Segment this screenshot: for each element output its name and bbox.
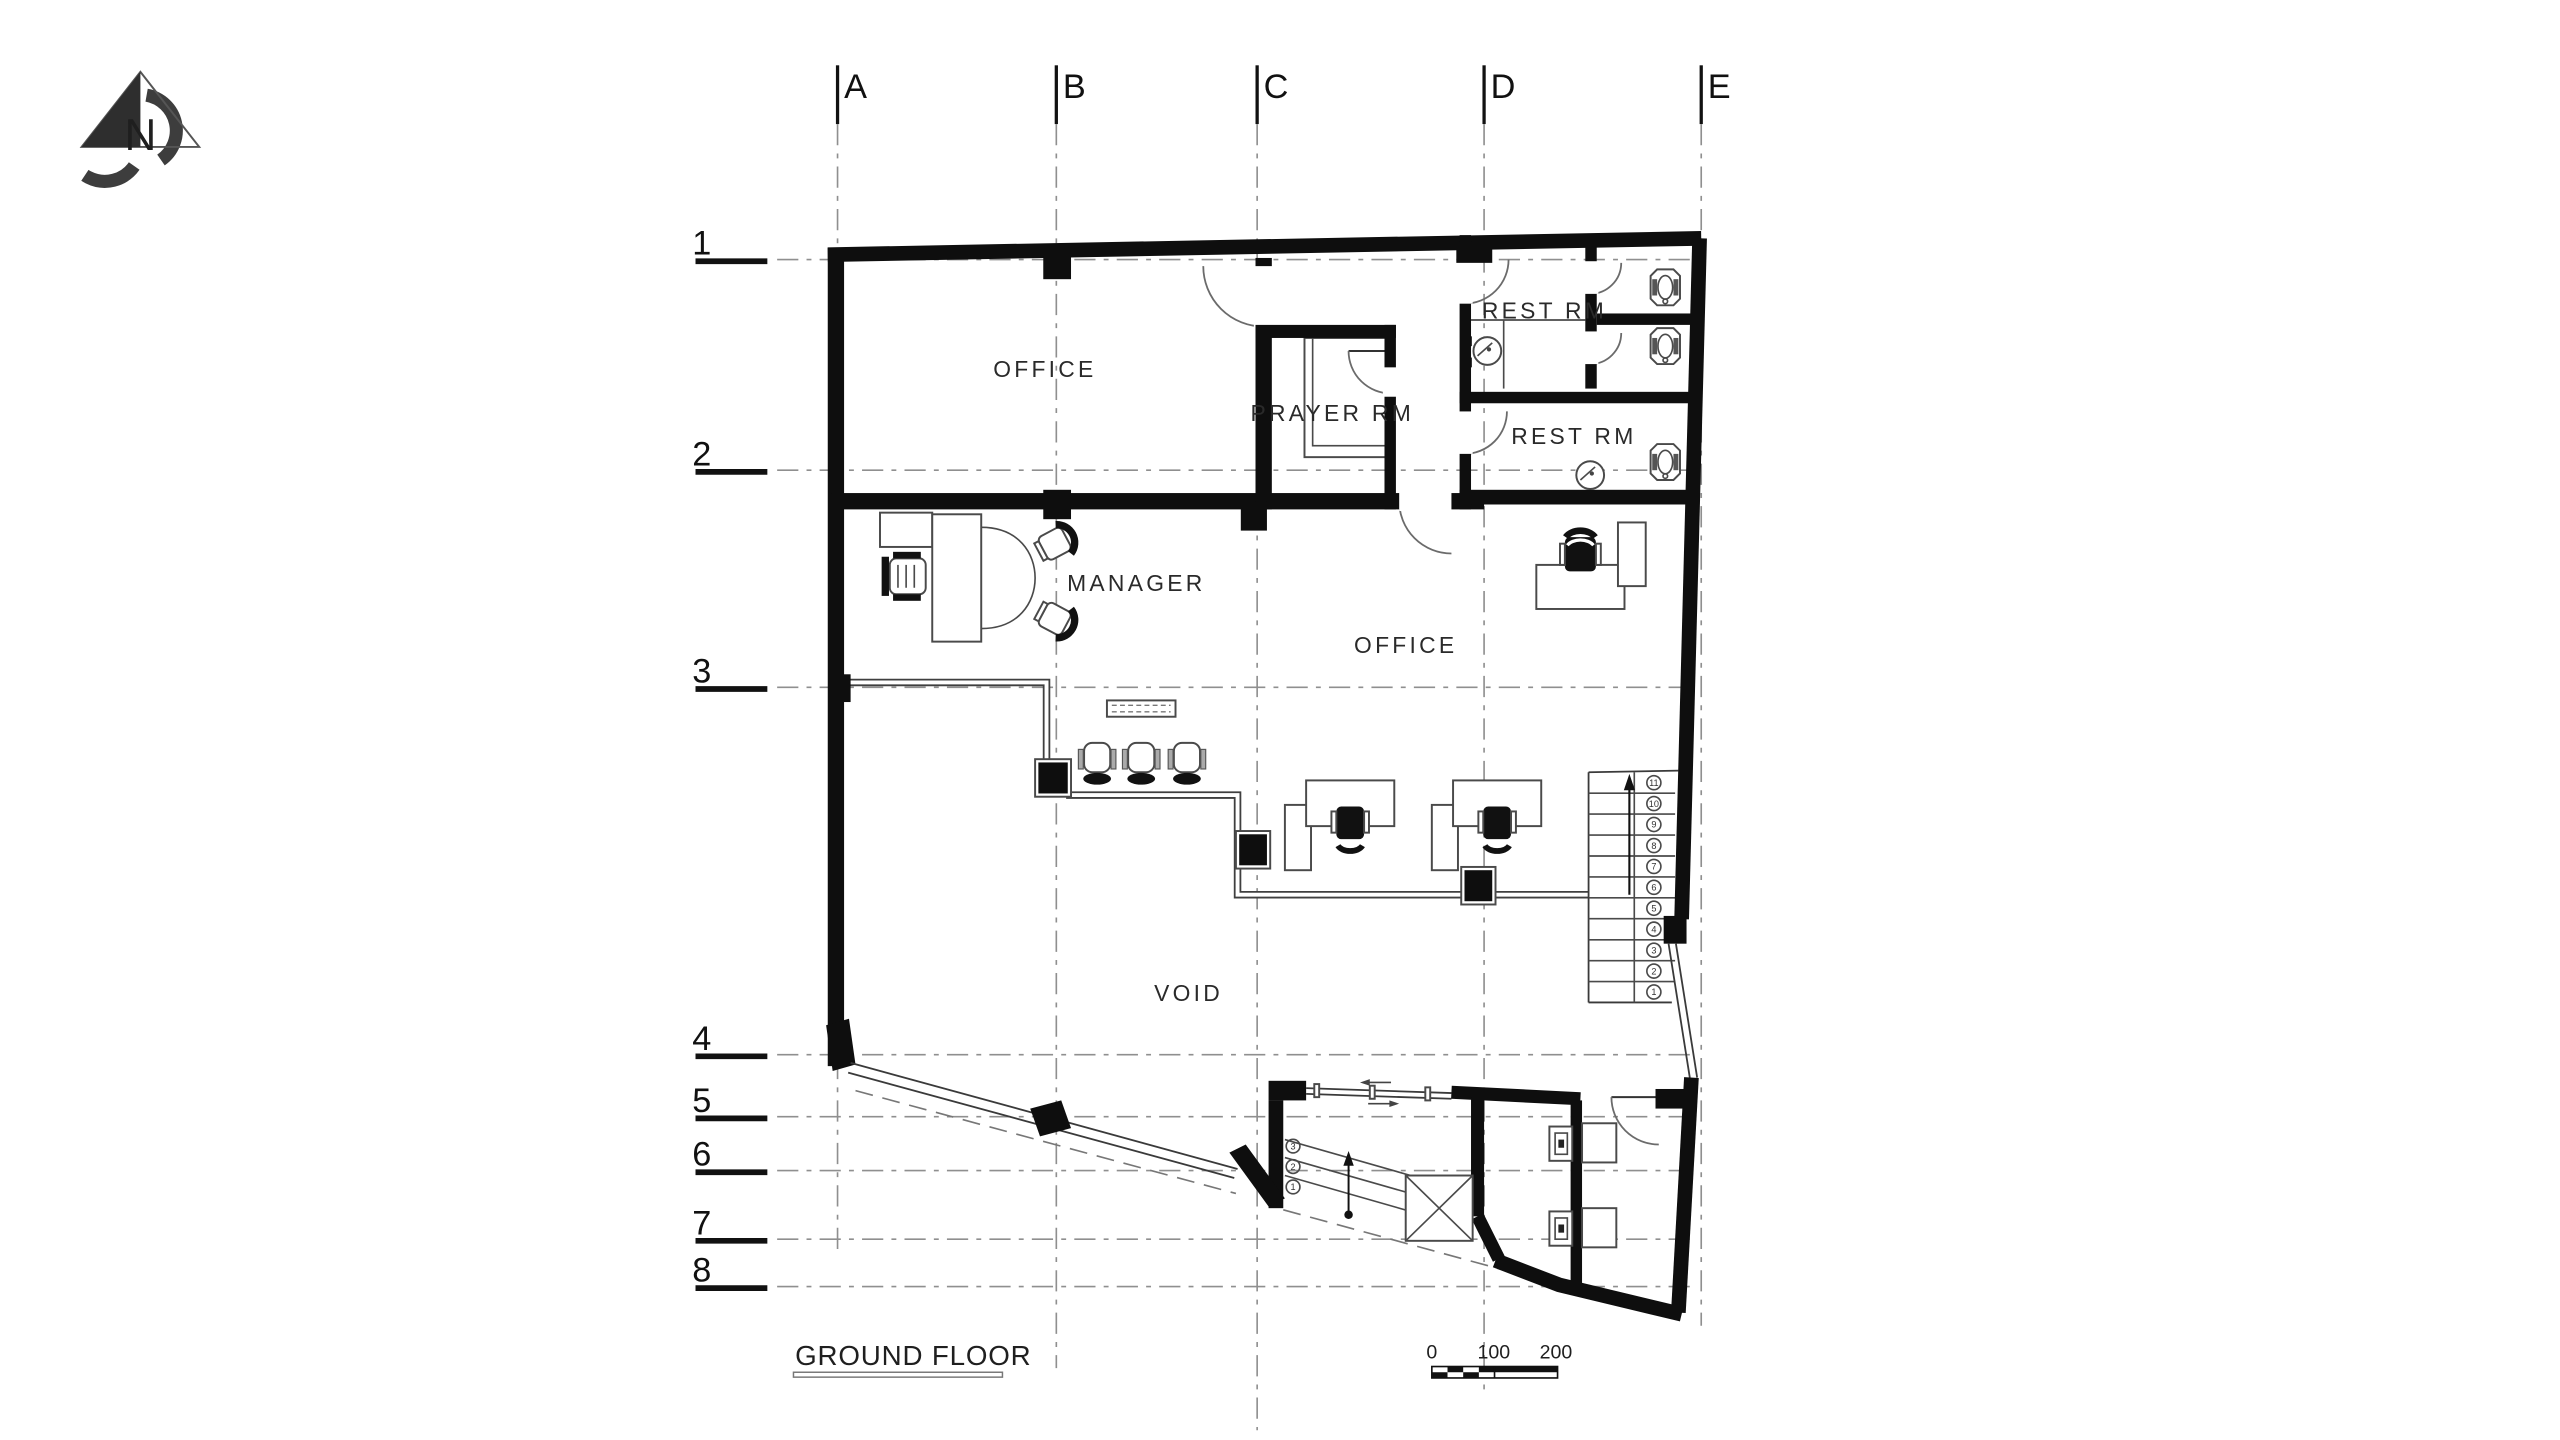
reception-counter-2: [1549, 1208, 1616, 1247]
svg-text:3: 3: [1291, 1141, 1296, 1151]
prayer-mat: [1304, 338, 1387, 457]
scale-label-0: 0: [1426, 1341, 1437, 1363]
toilet: [1651, 328, 1680, 364]
manager-label: MANAGER: [1067, 570, 1205, 596]
meeting-table: [1107, 700, 1176, 716]
grid-col-label-a: A: [844, 68, 867, 106]
scale-label-200: 200: [1540, 1341, 1573, 1363]
toilet: [1651, 444, 1680, 480]
grid-row-label-2: 2: [692, 435, 711, 473]
shaft-x-box: [1406, 1176, 1473, 1241]
drawing-title: GROUND FLOOR: [793, 1340, 1031, 1377]
grid-col-label-b: B: [1063, 68, 1086, 106]
room-labels: OFFICE PRAYER RM REST RM REST RM MANAGER…: [993, 297, 1636, 1005]
sink: [1576, 461, 1604, 494]
toilet: [1651, 269, 1680, 305]
svg-text:5: 5: [1651, 904, 1656, 914]
manager-workstation: [880, 513, 1080, 643]
entrance-vestibule: 3 2 1: [1229, 1079, 1691, 1286]
workstation-1: [1285, 780, 1394, 870]
office-top-label: OFFICE: [993, 356, 1096, 382]
grid-row-label-6: 6: [692, 1136, 711, 1174]
sliding-door-arrows: [1360, 1079, 1399, 1107]
prayer-room-label: PRAYER RM: [1250, 400, 1414, 426]
floor-plan-drawing: A B C D E 1 2 3 4 5 6 7 8 N: [0, 0, 2560, 1440]
svg-text:2: 2: [1651, 966, 1656, 976]
void-label: VOID: [1154, 980, 1223, 1006]
svg-text:10: 10: [1649, 799, 1659, 809]
stair-step-numbers: 1 2 3 4 5 6 7 8 9 10 11: [1647, 776, 1661, 999]
entry-direction-arrow: [1343, 1151, 1353, 1219]
grid-col-label-c: C: [1264, 68, 1289, 106]
svg-text:2: 2: [1291, 1162, 1296, 1172]
grid-row-label-1: 1: [692, 225, 711, 263]
north-arrow: N: [69, 72, 199, 181]
svg-text:6: 6: [1651, 883, 1656, 893]
svg-text:3: 3: [1651, 945, 1656, 955]
title-text: GROUND FLOOR: [795, 1340, 1031, 1371]
grid-col-label-e: E: [1708, 68, 1731, 106]
north-label: N: [124, 111, 156, 160]
rest-room-bottom-label: REST RM: [1511, 423, 1636, 449]
svg-text:8: 8: [1651, 841, 1656, 851]
svg-text:9: 9: [1651, 820, 1656, 830]
scale-bar: 0 100 200: [1426, 1341, 1572, 1378]
svg-text:11: 11: [1649, 778, 1658, 788]
main-staircase: 1 2 3 4 5 6 7 8 9 10 11: [1589, 771, 1679, 1003]
rest-room-top-label: REST RM: [1482, 297, 1607, 323]
reception-counter-1: [1549, 1123, 1616, 1162]
grid-row-label-3: 3: [692, 652, 711, 690]
entry-step-numbers: 3 2 1: [1286, 1139, 1300, 1194]
grid-row-label-4: 4: [692, 1020, 711, 1058]
grid-col-label-d: D: [1491, 68, 1516, 106]
floor-plan-page: A B C D E 1 2 3 4 5 6 7 8 N: [0, 0, 2560, 1440]
grid-row-label-7: 7: [692, 1204, 711, 1242]
svg-text:7: 7: [1651, 862, 1656, 872]
grid-row-label-8: 8: [692, 1252, 711, 1290]
svg-text:1: 1: [1291, 1182, 1296, 1192]
grid-row-label-5: 5: [692, 1082, 711, 1120]
office-main-desk: [1536, 522, 1645, 609]
svg-text:4: 4: [1651, 924, 1656, 934]
sink: [1468, 336, 1501, 367]
workstation-2: [1432, 780, 1541, 870]
svg-text:1: 1: [1651, 987, 1656, 997]
scale-label-100: 100: [1478, 1341, 1511, 1363]
office-main-label: OFFICE: [1354, 632, 1457, 658]
waiting-chairs: [1078, 743, 1205, 785]
executive-chair: [882, 552, 926, 601]
rear-exit-door: [1611, 1097, 1658, 1144]
